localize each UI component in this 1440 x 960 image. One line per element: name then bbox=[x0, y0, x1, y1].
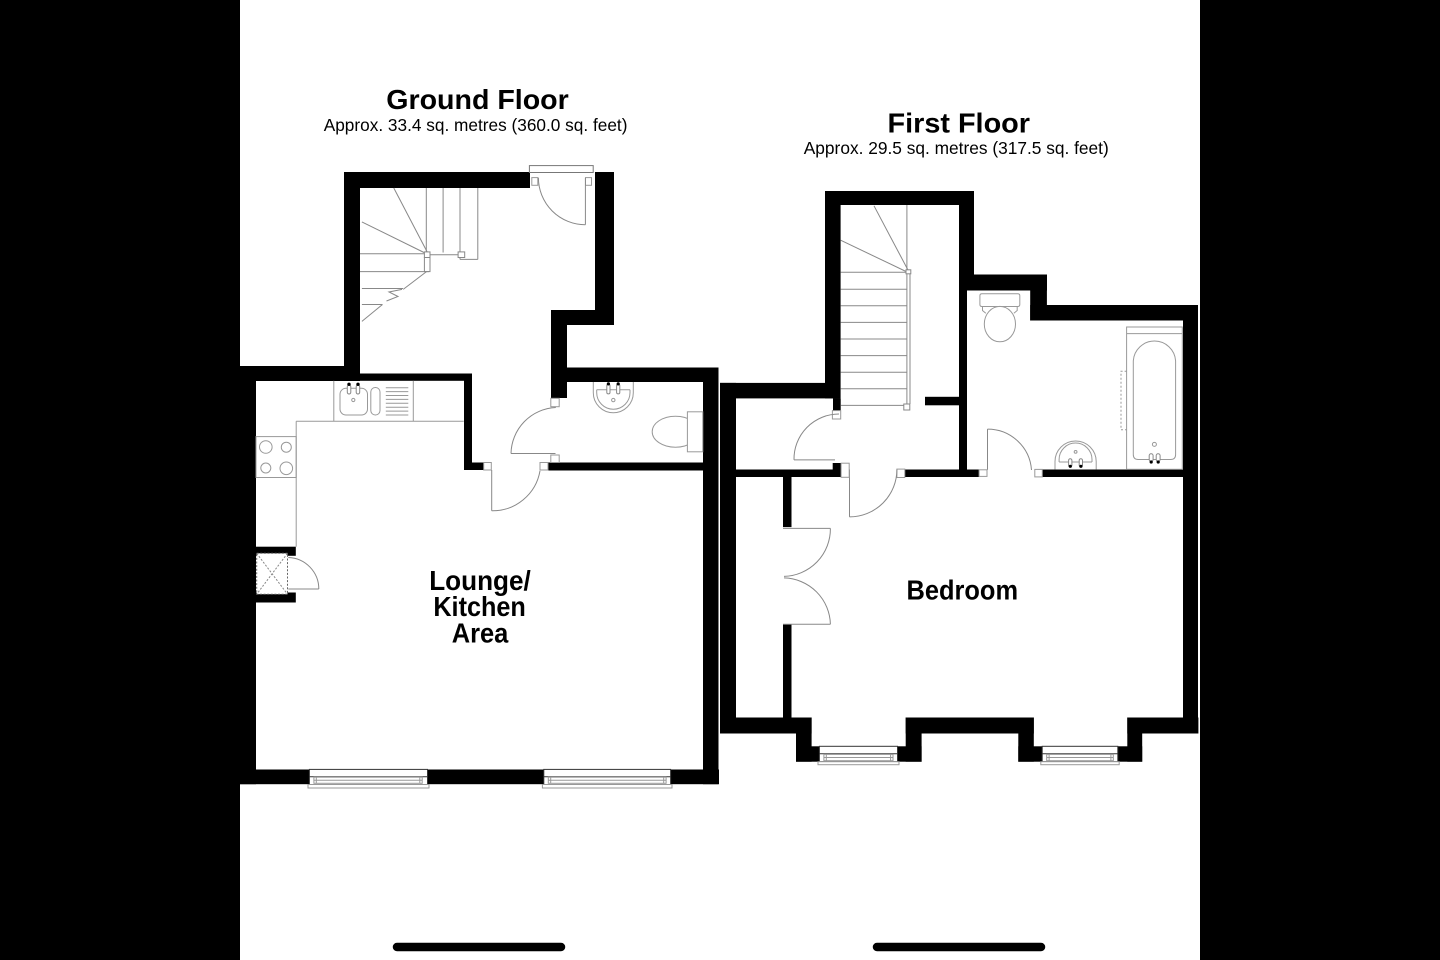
svg-text:First Floor: First Floor bbox=[888, 108, 1031, 139]
svg-text:Approx. 29.5 sq. metres (317.5: Approx. 29.5 sq. metres (317.5 sq. feet) bbox=[804, 138, 1109, 158]
svg-text:Area: Area bbox=[452, 618, 509, 649]
svg-text:Ground Floor: Ground Floor bbox=[386, 84, 569, 115]
svg-text:Bedroom: Bedroom bbox=[907, 575, 1019, 606]
svg-text:Approx. 33.4 sq. metres (360.0: Approx. 33.4 sq. metres (360.0 sq. feet) bbox=[324, 115, 628, 135]
